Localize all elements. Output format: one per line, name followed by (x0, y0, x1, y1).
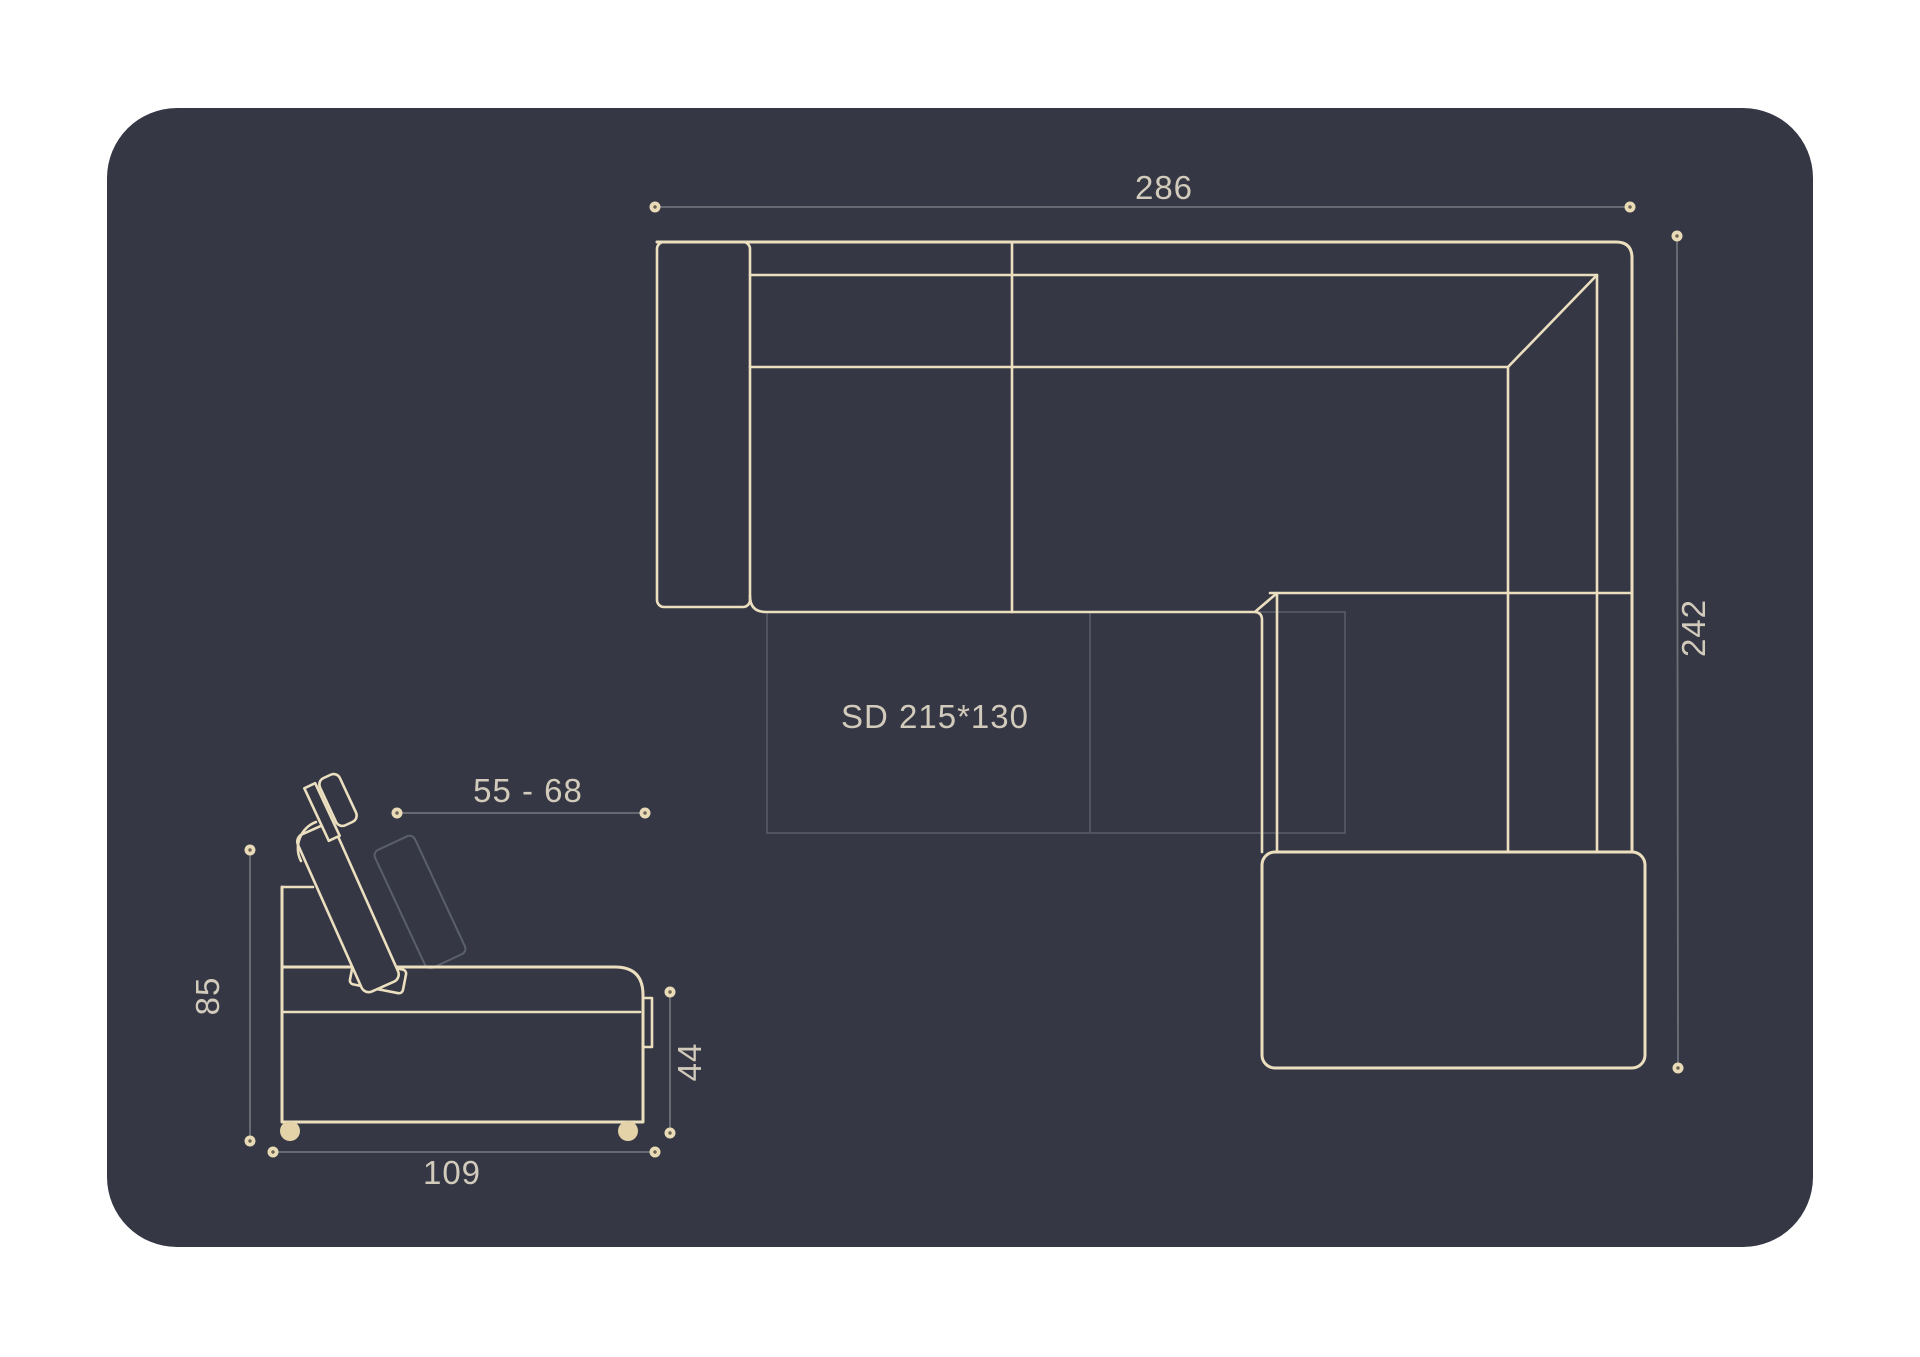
dimension-dot-core (395, 811, 398, 814)
back-leg (280, 1121, 300, 1141)
dimension-label-height: 85 (189, 977, 226, 1016)
dimension-dot-core (248, 848, 251, 851)
dimension-dot-core (668, 1131, 671, 1134)
dimension-dot-core (1676, 1066, 1679, 1069)
front-leg (618, 1121, 638, 1141)
dimension-dot-core (271, 1150, 274, 1153)
dimension-dot-core (1628, 205, 1631, 208)
drawing-stage: 286 242 SD 215*130 55 - 68 (0, 0, 1920, 1357)
dimension-label-headrest-range: 55 - 68 (473, 772, 583, 809)
sofa-dimension-drawing: 286 242 SD 215*130 55 - 68 (0, 0, 1920, 1357)
dimension-dot-core (643, 811, 646, 814)
dimension-dot-core (248, 1139, 251, 1142)
sleeping-dimensions-label: SD 215*130 (841, 698, 1029, 735)
dimension-dot-core (1675, 234, 1678, 237)
dimension-dot-core (653, 205, 656, 208)
dimension-dot-core (668, 990, 671, 993)
drawing-panel (107, 108, 1813, 1247)
dimension-label-total-width: 286 (1135, 169, 1193, 206)
dimension-label-total-depth: 242 (1675, 599, 1712, 657)
dimension-dot-core (653, 1150, 656, 1153)
dimension-label-side-depth: 109 (423, 1154, 481, 1191)
dimension-label-seat-height: 44 (671, 1043, 708, 1082)
